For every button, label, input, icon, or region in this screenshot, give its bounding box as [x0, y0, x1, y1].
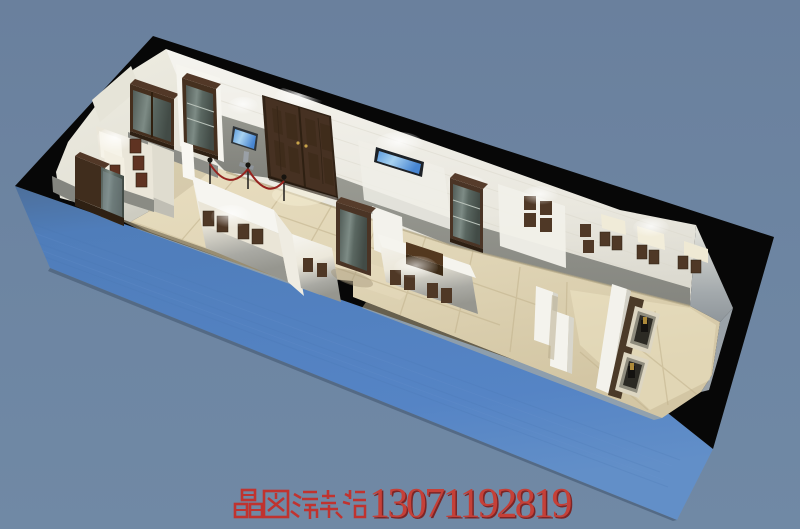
- svg-text:13071192819: 13071192819: [369, 481, 571, 527]
